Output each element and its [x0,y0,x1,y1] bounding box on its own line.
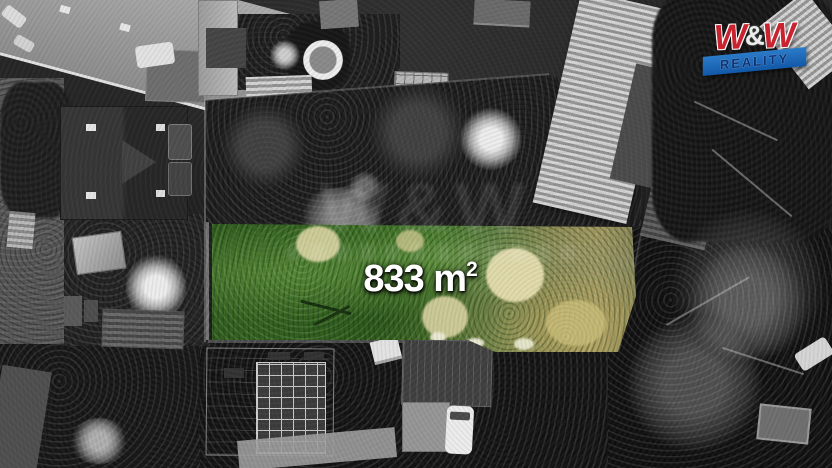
plot-area-superscript: 2 [466,258,477,281]
shed-ribbed-small [6,211,35,249]
agency-logo: W&W REALITY [699,18,809,73]
logo-letter-w-left: W [713,17,745,57]
yard-clutter [84,300,98,322]
shed-roof-light [72,231,127,276]
plot-boundary-light-left [206,222,209,340]
tree-canopy [222,104,306,188]
roof-small [319,0,359,29]
house-roof-dark-ribbed [401,339,493,407]
dark-roofs-left [101,309,184,350]
parked-car-dark [168,124,192,160]
bush-light [70,418,128,464]
yard-clutter [64,296,82,326]
aerial-photo: W&W 833 m2 W&W REALITY [0,0,832,468]
logo-ampersand: & [744,20,763,52]
house-roof-lower [402,402,450,452]
pale-tree [546,300,606,346]
roof-window [86,192,96,199]
roof-window [156,124,165,131]
house-gable [122,140,156,184]
shed-dark [206,28,246,68]
van-windshield [450,411,470,420]
watermark-logo-letters: W&W [310,168,540,248]
parked-car-dark [168,162,192,196]
plot-area-value: 833 m [363,258,466,300]
trailer-bottom-right [756,403,811,444]
bare-tree-crown [668,210,828,360]
roof-vent [268,352,290,360]
white-canopy-small [270,40,300,70]
tree-canopy [370,84,466,180]
blossom-tree-garden [460,108,522,170]
roof-vent [304,352,324,360]
roof-vent [224,368,244,378]
roof-window [86,124,96,131]
pale-shrub [514,338,534,350]
plot-area-label: 833 m2 [330,258,510,301]
roof-small [473,0,530,27]
pale-tree [422,296,468,338]
roof-window [156,190,165,197]
